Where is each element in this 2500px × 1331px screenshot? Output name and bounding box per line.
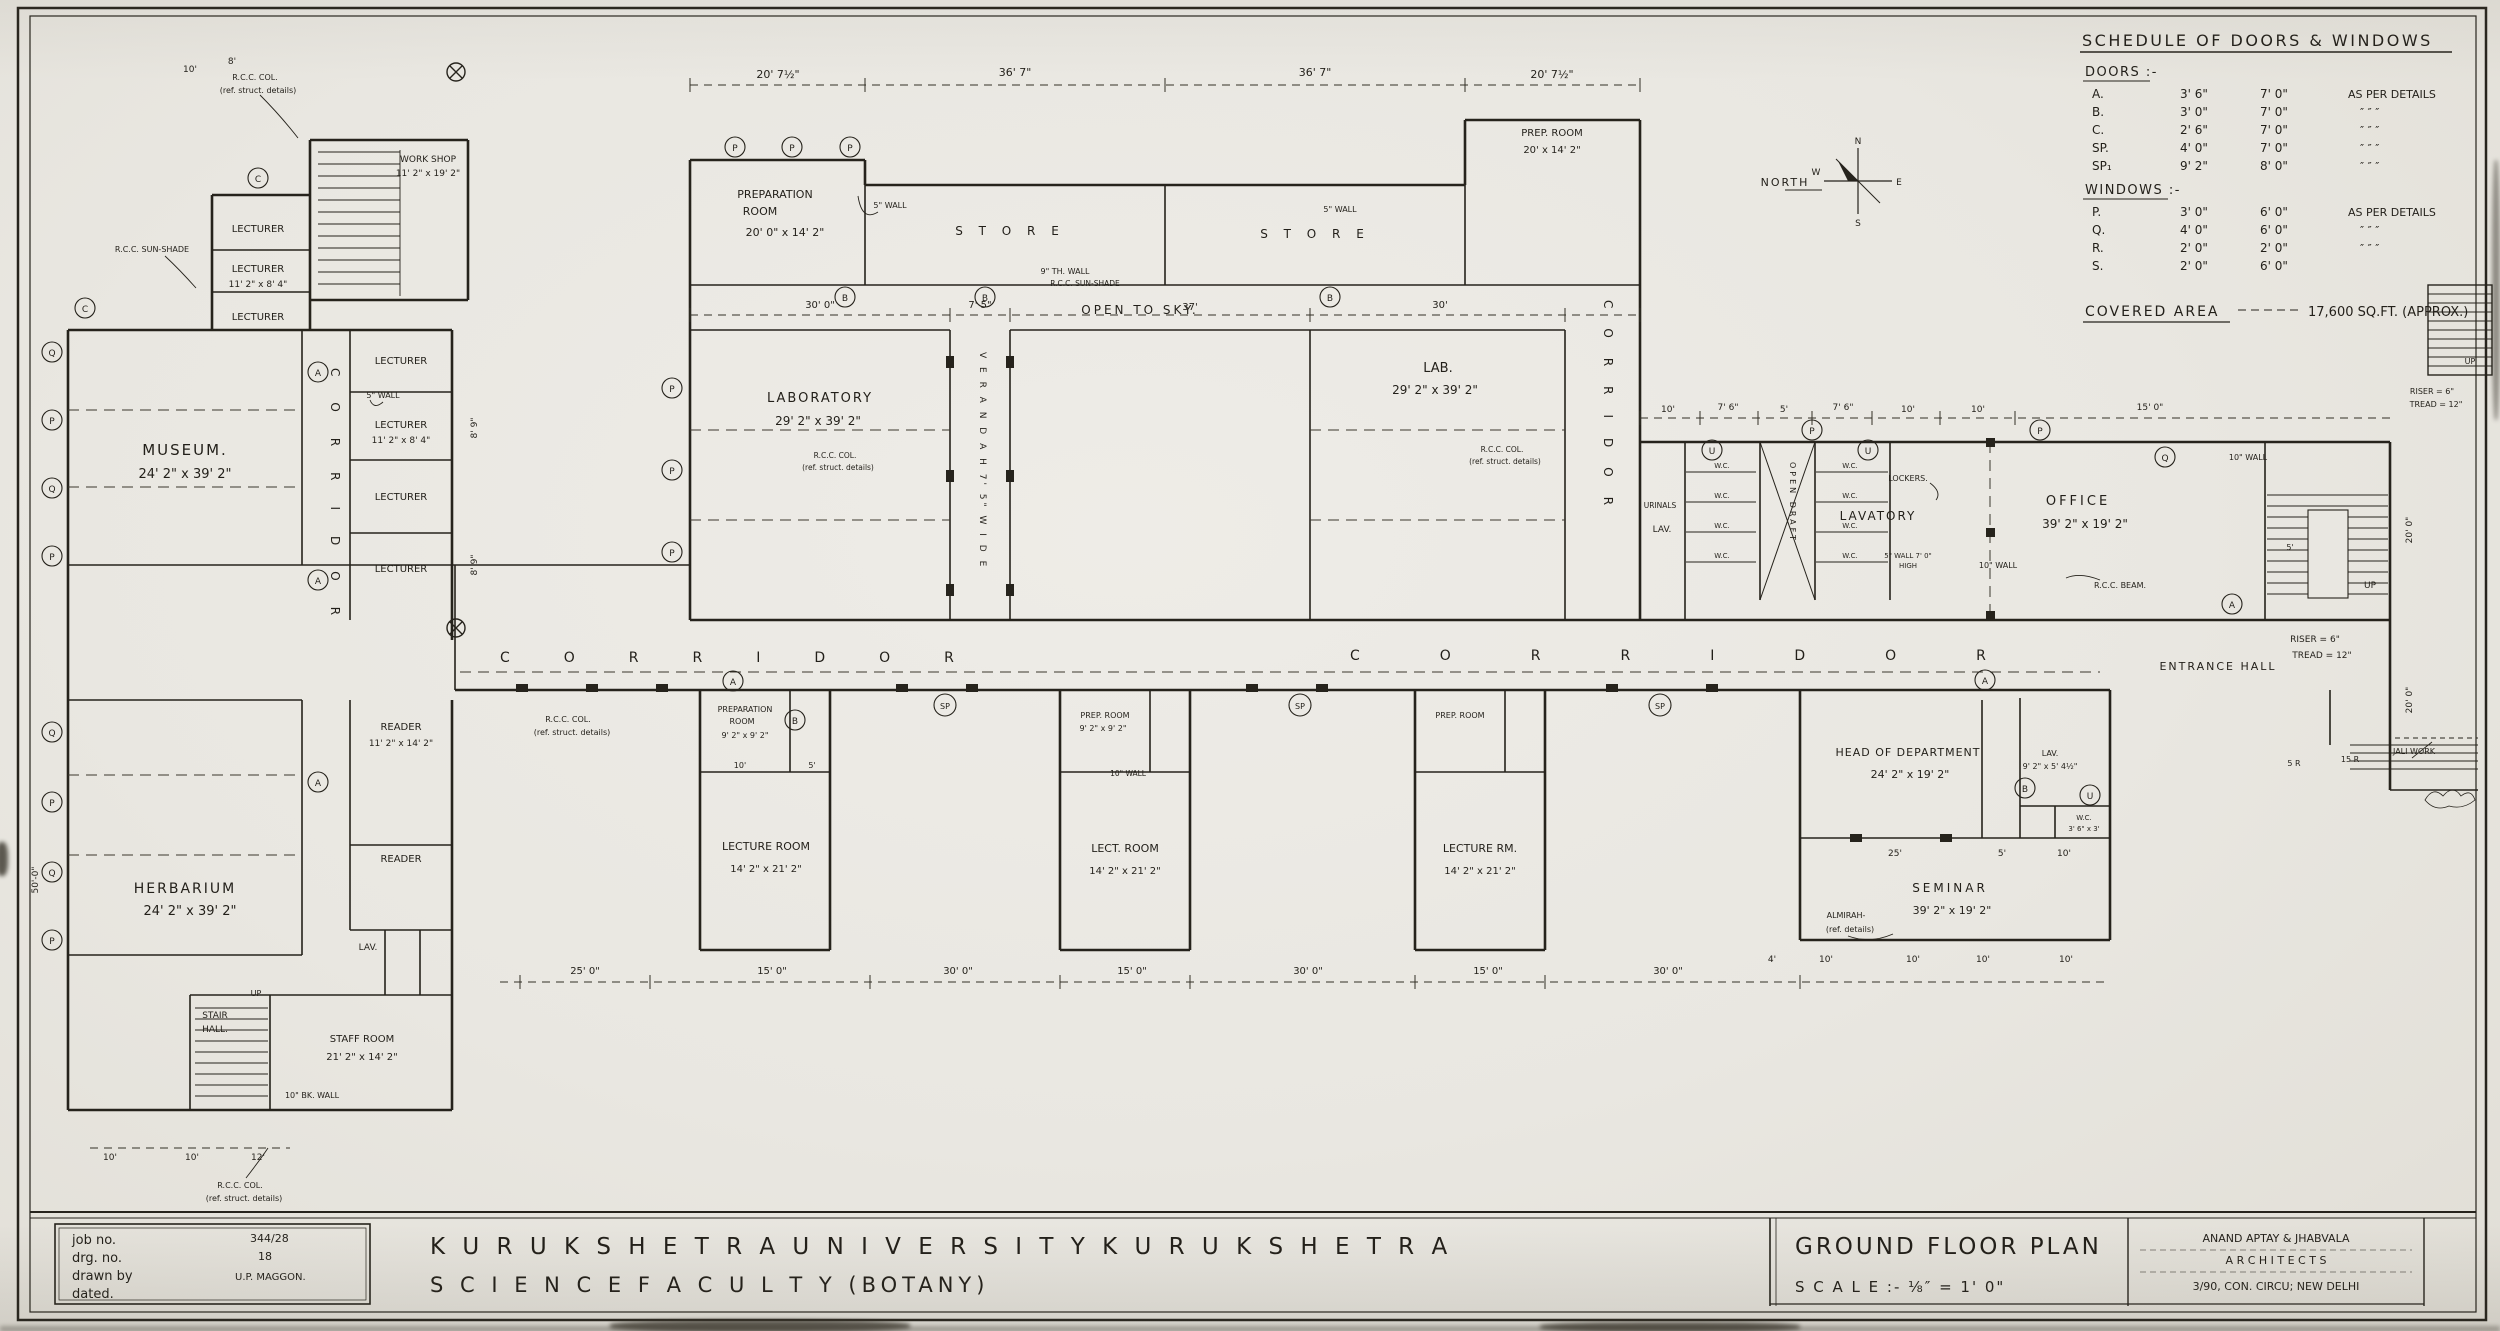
jali-note: JALI WORK [2392,747,2436,756]
svg-text:30': 30' [1432,300,1447,311]
window-rows: P.3' 0"6' 0"AS PER DETAILS Q.4' 0"6' 0"″… [2092,205,2436,273]
svg-text:C: C [82,305,88,315]
svg-text:8' 0": 8' 0" [2260,159,2288,173]
svg-text:B.: B. [2092,105,2104,119]
room-lavatory: LAVATORY [1840,509,1917,523]
svg-text:P: P [732,144,738,154]
svg-text:″ ″ ″: ″ ″ ″ [2360,224,2379,237]
svg-text:10': 10' [1971,405,1985,415]
svg-text:NORTH: NORTH [1761,176,1810,189]
svg-text:29' 2" x 39' 2": 29' 2" x 39' 2" [1392,383,1478,397]
floor-plan-svg: SCHEDULE OF DOORS & WINDOWS DOORS :- A.3… [0,0,2500,1331]
svg-text:8' 9": 8' 9" [470,418,480,439]
up-label-left: UP [251,989,262,998]
svg-text:W.C.: W.C. [1842,492,1857,500]
svg-text:11' 2" x 19' 2": 11' 2" x 19' 2" [396,169,460,179]
stair-hall-left [195,1008,268,1096]
room-herbarium: HERBARIUM [134,881,236,897]
drg-label: drg. no. [72,1251,122,1266]
svg-text:10" WALL: 10" WALL [1110,769,1147,778]
svg-text:(ref. details): (ref. details) [1826,925,1874,934]
svg-text:E: E [1896,178,1902,188]
svg-text:15' 0": 15' 0" [2137,403,2164,413]
architects-line3: 3/90, CON. CIRCU; NEW DELHI [2193,1280,2360,1293]
svg-text:S.: S. [2092,259,2103,273]
svg-text:TREAD = 12": TREAD = 12" [2291,651,2351,661]
svg-text:20' 0" x 14' 2": 20' 0" x 14' 2" [746,226,825,239]
svg-text:LECTURER: LECTURER [375,564,428,575]
svg-text:LECTURER: LECTURER [232,264,285,275]
drg-value: 18 [258,1250,272,1263]
svg-text:5': 5' [808,761,815,770]
svg-text:P: P [669,385,675,395]
svg-text:6' 0": 6' 0" [2260,223,2288,237]
svg-text:20' 7½": 20' 7½" [756,68,799,81]
svg-text:36' 7": 36' 7" [1299,66,1332,79]
svg-text:4' 0": 4' 0" [2180,141,2208,155]
room-lecturer: LECTURER [232,224,285,235]
note-rcc-sunshade-left: R.C.C. SUN-SHADE [115,245,189,254]
open-draft-label: OPEN DRAFT [1788,462,1797,543]
svg-text:P: P [49,553,55,563]
svg-text:20' 0": 20' 0" [2405,687,2415,714]
svg-text:P: P [847,144,853,154]
svg-text:W.C.: W.C. [1842,552,1857,560]
stair-workshop [318,150,400,296]
svg-text:14' 2" x 21' 2": 14' 2" x 21' 2" [1444,866,1516,877]
svg-text:LECTURER: LECTURER [375,492,428,503]
title-block: job no. drg. no. drawn by dated. 344/28 … [30,1212,2476,1306]
svg-text:10': 10' [1906,955,1920,965]
svg-text:N: N [1855,137,1862,147]
plan-title: GROUND FLOOR PLAN [1795,1234,2102,1260]
svg-text:2' 0": 2' 0" [2260,241,2288,255]
svg-text:10': 10' [2057,849,2071,859]
svg-text:10': 10' [1661,405,1675,415]
svg-text:39' 2" x 19' 2": 39' 2" x 19' 2" [1913,904,1992,917]
svg-text:A: A [1982,677,1989,687]
svg-text:TREAD = 12": TREAD = 12" [2409,400,2463,409]
room-open-to-sky: OPEN TO SKY. [1081,303,1198,317]
svg-text:25': 25' [1888,849,1902,859]
note-wall5-prep: 5" WALL [873,201,907,210]
note-wall10-office: 10" WALL [2229,453,2268,462]
svg-text:10': 10' [1901,405,1915,415]
svg-text:2' 0": 2' 0" [2180,241,2208,255]
leader-lines [165,95,2432,1178]
svg-text:7' 6": 7' 6" [1833,403,1854,413]
svg-text:CORRIDOR: CORRIDOR [1601,300,1615,525]
svg-text:8' 9": 8' 9" [470,555,480,576]
note-lockers: LOCKERS. [1888,474,1928,483]
svg-text:SP.: SP. [2092,141,2109,155]
svg-text:W.C.: W.C. [1714,522,1729,530]
svg-text:LECTURER: LECTURER [232,312,285,323]
note-rcc-beam: R.C.C. BEAM. [2094,581,2146,590]
svg-text:11' 2" x 8' 4": 11' 2" x 8' 4" [229,280,288,290]
room-lecture-2: LECT. ROOM [1091,842,1159,855]
svg-text:25' 0": 25' 0" [570,966,600,977]
up-label-right: UP [2465,357,2476,366]
covered-area-value: 17,600 SQ.FT. (APPROX.) [2308,305,2468,320]
svg-text:24' 2" x 39' 2": 24' 2" x 39' 2" [139,467,232,482]
svg-text:6' 0": 6' 0" [2260,205,2288,219]
room-staff: STAFF ROOM [330,1034,395,1045]
note-rcc-sunshade-court: R.C.C. SUN-SHADE [1050,279,1120,288]
svg-text:B: B [792,717,798,727]
note-rcc-col-lab2: R.C.C. COL. [1481,445,1524,454]
svg-text:AS PER DETAILS: AS PER DETAILS [2348,206,2436,219]
svg-text:10': 10' [734,761,746,770]
room-lav-left: LAV. [359,943,378,953]
svg-text:(ref. struct. details): (ref. struct. details) [220,86,297,95]
svg-text:P: P [49,417,55,427]
svg-text:(ref. struct. details): (ref. struct. details) [802,463,874,472]
sheet-border [18,8,2486,1320]
svg-text:″ ″ ″: ″ ″ ″ [2360,106,2379,119]
svg-text:30' 0": 30' 0" [1293,966,1323,977]
svg-text:21' 2" x 14' 2": 21' 2" x 14' 2" [326,1052,398,1063]
svg-text:14' 2" x 21' 2": 14' 2" x 21' 2" [730,864,802,875]
note-wall5-high: 5" WALL 7' 0" [1884,552,1932,560]
svg-text:10': 10' [2059,955,2073,965]
svg-text:14' 2" x 21' 2": 14' 2" x 21' 2" [1089,866,1161,877]
drawn-value: U.P. MAGGON. [235,1272,306,1283]
svg-text:P: P [49,799,55,809]
svg-text:(ref. struct. details): (ref. struct. details) [1469,457,1541,466]
svg-text:SP: SP [1655,702,1665,711]
svg-text:Q.: Q. [2092,223,2105,237]
svg-text:C: C [255,175,261,185]
architects-line2: A R C H I T E C T S [2226,1254,2327,1267]
svg-text:Q: Q [48,485,55,495]
svg-text:ROOM: ROOM [743,205,777,218]
room-store-2: S T O R E [1260,227,1370,241]
svg-text:24' 2" x 19' 2": 24' 2" x 19' 2" [1871,768,1950,781]
svg-text:U: U [2087,792,2094,802]
job-label: job no. [71,1233,116,1248]
svg-text:7' 0": 7' 0" [2260,123,2288,137]
svg-text:RISER = 6": RISER = 6" [2410,387,2454,396]
svg-text:Q: Q [48,869,55,879]
svg-text:7' 0": 7' 0" [2260,87,2288,101]
svg-text:3' 6" x 3': 3' 6" x 3' [2068,825,2099,833]
door-rows: A.3' 6"7' 0"AS PER DETAILS B.3' 0"7' 0"″… [2092,87,2436,173]
svg-text:W.C.: W.C. [1842,462,1857,470]
svg-text:ROOM: ROOM [729,717,754,726]
svg-text:36' 7": 36' 7" [999,66,1032,79]
svg-text:A: A [2229,601,2236,611]
covered-area-label: COVERED AREA [2085,304,2220,320]
wc-label: W.C. [1714,462,1729,470]
doors-heading: DOORS :- [2085,65,2158,80]
schedule-title: SCHEDULE OF DOORS & WINDOWS [2082,31,2433,50]
room-seminar: SEMINAR [1912,881,1988,895]
svg-text:C.: C. [2092,123,2104,137]
room-lecture-3: LECTURE RM. [1443,842,1517,855]
interior-walls [68,160,2478,1110]
drawn-label: drawn by [72,1269,133,1284]
project-title-line2: S C I E N C E F A C U L T Y (BOTANY) [430,1273,989,1297]
svg-text:7' 6": 7' 6" [1718,403,1739,413]
svg-text:10': 10' [103,1153,117,1163]
svg-text:P: P [2037,427,2043,437]
svg-text:CORRIDOR: CORRIDOR [500,650,1008,666]
svg-text:11' 2" x 8' 4": 11' 2" x 8' 4" [372,436,431,446]
svg-text:3' 0": 3' 0" [2180,105,2208,119]
svg-text:P: P [1809,427,1815,437]
note-urinals: URINALS [1644,501,1677,510]
svg-text:A: A [315,369,322,379]
svg-text:4': 4' [1768,955,1776,965]
room-stair-hall: STAIR [202,1011,228,1021]
svg-text:B: B [2022,785,2028,795]
room-laboratory: LABORATORY [767,391,873,406]
svg-text:15' 0": 15' 0" [757,966,787,977]
room-prep-right: PREP. ROOM [1521,128,1582,139]
svg-text:Q: Q [2161,454,2168,464]
svg-text:″ ″ ″: ″ ″ ″ [2360,242,2379,255]
svg-text:B: B [842,294,848,304]
svg-text:10': 10' [185,1153,199,1163]
svg-text:7' 0": 7' 0" [2260,105,2288,119]
svg-text:30' 0": 30' 0" [805,300,835,311]
note-rcc-col-corridor: R.C.C. COL. [545,715,591,724]
room-workshop: WORK SHOP [400,155,457,165]
svg-text:37': 37' [1182,302,1197,313]
svg-text:3' 6": 3' 6" [2180,87,2208,101]
svg-text:2' 6": 2' 6" [2180,123,2208,137]
svg-text:3' 0": 3' 0" [2180,205,2208,219]
svg-text:7' 0": 7' 0" [2260,141,2288,155]
room-lav-right: LAV. [2042,749,2059,758]
svg-text:5': 5' [1780,405,1788,415]
svg-text:LAV.: LAV. [1653,525,1672,535]
svg-text:Q: Q [48,349,55,359]
svg-text:20' 0": 20' 0" [2405,517,2415,544]
svg-text:W.C.: W.C. [1714,552,1729,560]
north-arrow: NORTH N E S W [1761,137,1903,229]
svg-text:20' x 14' 2": 20' x 14' 2" [1523,145,1580,156]
plan-scale: S C A L E :- ⅛″ = 1' 0" [1795,1278,2005,1296]
svg-text:6' 0": 6' 0" [2260,259,2288,273]
dimension-lines [90,85,2390,1148]
steps-15r: 15 R [2341,755,2360,764]
note-rcc-col-top: R.C.C. COL. [232,73,278,82]
svg-text:15' 0": 15' 0" [1473,966,1503,977]
room-wc-right: W.C. [2076,814,2091,822]
almirah-note: ALMIRAH- [1827,911,1866,920]
section-marks [447,63,465,637]
svg-text:″ ″ ″: ″ ″ ″ [2360,160,2379,173]
svg-text:″ ″ ″: ″ ″ ″ [2360,124,2379,137]
svg-text:24' 2" x 39' 2": 24' 2" x 39' 2" [144,904,237,919]
svg-text:10': 10' [1976,955,1990,965]
svg-text:11' 2" x 14' 2": 11' 2" x 14' 2" [369,739,433,749]
note-bkwall: 10" BK. WALL [285,1091,340,1100]
svg-text:R.: R. [2092,241,2104,255]
corridor-labels: CORRIDOR CORRIDOR CORRIDOR CORRIDOR V E … [328,300,2066,666]
svg-text:U: U [1709,447,1716,457]
note-wall5-lect: 5" WALL [366,391,400,400]
svg-text:LECTURER: LECTURER [375,420,428,431]
svg-text:9' 2" x 9' 2": 9' 2" x 9' 2" [1079,724,1126,733]
svg-text:29' 2" x 39' 2": 29' 2" x 39' 2" [775,414,861,428]
svg-text:W.C.: W.C. [1842,522,1857,530]
room-lab: LAB. [1423,361,1453,376]
svg-text:AS PER DETAILS: AS PER DETAILS [2348,88,2436,101]
job-value: 344/28 [250,1232,289,1245]
door-window-marks: QPQP QPQP AAA CC PPP PPP BBB PP QA AA BB… [42,137,2242,950]
svg-text:A.: A. [2092,87,2104,101]
svg-text:W.C.: W.C. [1714,492,1729,500]
paper-smudge [0,1326,2500,1331]
svg-text:9' 2" x 9' 2": 9' 2" x 9' 2" [721,731,768,740]
svg-text:HALL.: HALL. [202,1025,228,1035]
svg-text:P: P [789,144,795,154]
svg-text:50'-0": 50'-0" [31,866,41,893]
room-prep-left: PREPARATION [737,188,812,201]
svg-text:10': 10' [183,65,197,75]
svg-text:CORRIDOR: CORRIDOR [1350,648,2066,664]
svg-text:U: U [1865,447,1872,457]
svg-text:A: A [315,779,322,789]
svg-text:30' 0": 30' 0" [943,966,973,977]
svg-text:20' 7½": 20' 7½" [1530,68,1573,81]
svg-text:5': 5' [2286,543,2293,552]
svg-text:P: P [669,549,675,559]
dimension-text: 20' 7½" 36' 7" 36' 7" 20' 7½" 30' 0" 7' … [31,57,2415,1163]
svg-text:READER: READER [380,854,421,865]
exterior-walls [68,120,2390,1110]
svg-text:B: B [1327,294,1333,304]
room-reader: READER [380,722,421,733]
windows-heading: WINDOWS :- [2085,183,2181,198]
svg-text:39' 2" x 19' 2": 39' 2" x 19' 2" [2042,517,2128,531]
svg-text:″ ″ ″: ″ ″ ″ [2360,142,2379,155]
riser-note: RISER = 6" [2290,635,2340,645]
steps-5r: 5 R [2287,759,2301,768]
note-wall9: 9" TH. WALL [1040,267,1090,276]
svg-text:8': 8' [228,57,236,67]
note-rcc-col-lab: R.C.C. COL. [814,451,857,460]
schedule-of-doors-windows: SCHEDULE OF DOORS & WINDOWS DOORS :- A.3… [2080,31,2468,322]
svg-text:4' 0": 4' 0" [2180,223,2208,237]
svg-text:10': 10' [1819,955,1833,965]
svg-text:15' 0": 15' 0" [1117,966,1147,977]
drawing-sheet: SCHEDULE OF DOORS & WINDOWS DOORS :- A.3… [0,0,2500,1331]
room-museum: MUSEUM. [142,441,228,459]
svg-text:HIGH: HIGH [1899,562,1917,570]
svg-text:9' 2" x 5' 4½": 9' 2" x 5' 4½" [2023,762,2078,771]
room-prep-b3: PREP. ROOM [1435,711,1484,720]
svg-text:5': 5' [1998,849,2006,859]
room-lecture-1: LECTURE ROOM [722,840,810,853]
svg-text:2' 0": 2' 0" [2180,259,2208,273]
svg-text:P: P [49,937,55,947]
stair-upper-right [2428,285,2492,375]
svg-text:A: A [315,577,322,587]
note-rcc-col-bottom: R.C.C. COL. [217,1181,263,1190]
room-store-1: S T O R E [955,224,1065,238]
svg-text:CORRIDOR: CORRIDOR [328,368,342,641]
svg-text:A: A [730,678,737,688]
svg-text:W: W [1812,168,1821,178]
project-title-line1: K U R U K S H E T R A U N I V E R S I T … [430,1234,1452,1260]
room-hod: HEAD OF DEPARTMENT [1835,746,1980,759]
verandah-label: V E R A N D A H 7' 5" W I D E [977,352,987,569]
svg-text:SP: SP [940,702,950,711]
svg-text:LECTURER: LECTURER [375,356,428,367]
svg-text:SP: SP [1295,702,1305,711]
svg-text:(ref. struct. details): (ref. struct. details) [206,1194,283,1203]
paper-smudge [2492,160,2500,420]
svg-text:S: S [1855,219,1861,229]
svg-text:B: B [982,294,988,304]
up-label-entrance: UP [2364,581,2377,591]
paper-smudge [0,842,8,876]
svg-text:10" WALL: 10" WALL [1979,561,2018,570]
svg-text:P: P [669,467,675,477]
svg-text:5" WALL: 5" WALL [1323,205,1357,214]
svg-text:P.: P. [2092,205,2101,219]
svg-text:SP₁: SP₁ [2092,159,2112,173]
architects-line1: ANAND APTAY & JHABVALA [2203,1232,2350,1245]
svg-text:Q: Q [48,729,55,739]
room-prep-b2: PREP. ROOM [1080,711,1129,720]
room-office: OFFICE [2046,494,2110,509]
svg-text:9' 2": 9' 2" [2180,159,2208,173]
room-entrance-hall: ENTRANCE HALL [2159,660,2276,673]
dated-label: dated. [72,1287,114,1302]
svg-text:30' 0": 30' 0" [1653,966,1683,977]
room-prep-b1: PREPARATION [718,705,773,714]
svg-text:(ref. struct. details): (ref. struct. details) [534,728,611,737]
